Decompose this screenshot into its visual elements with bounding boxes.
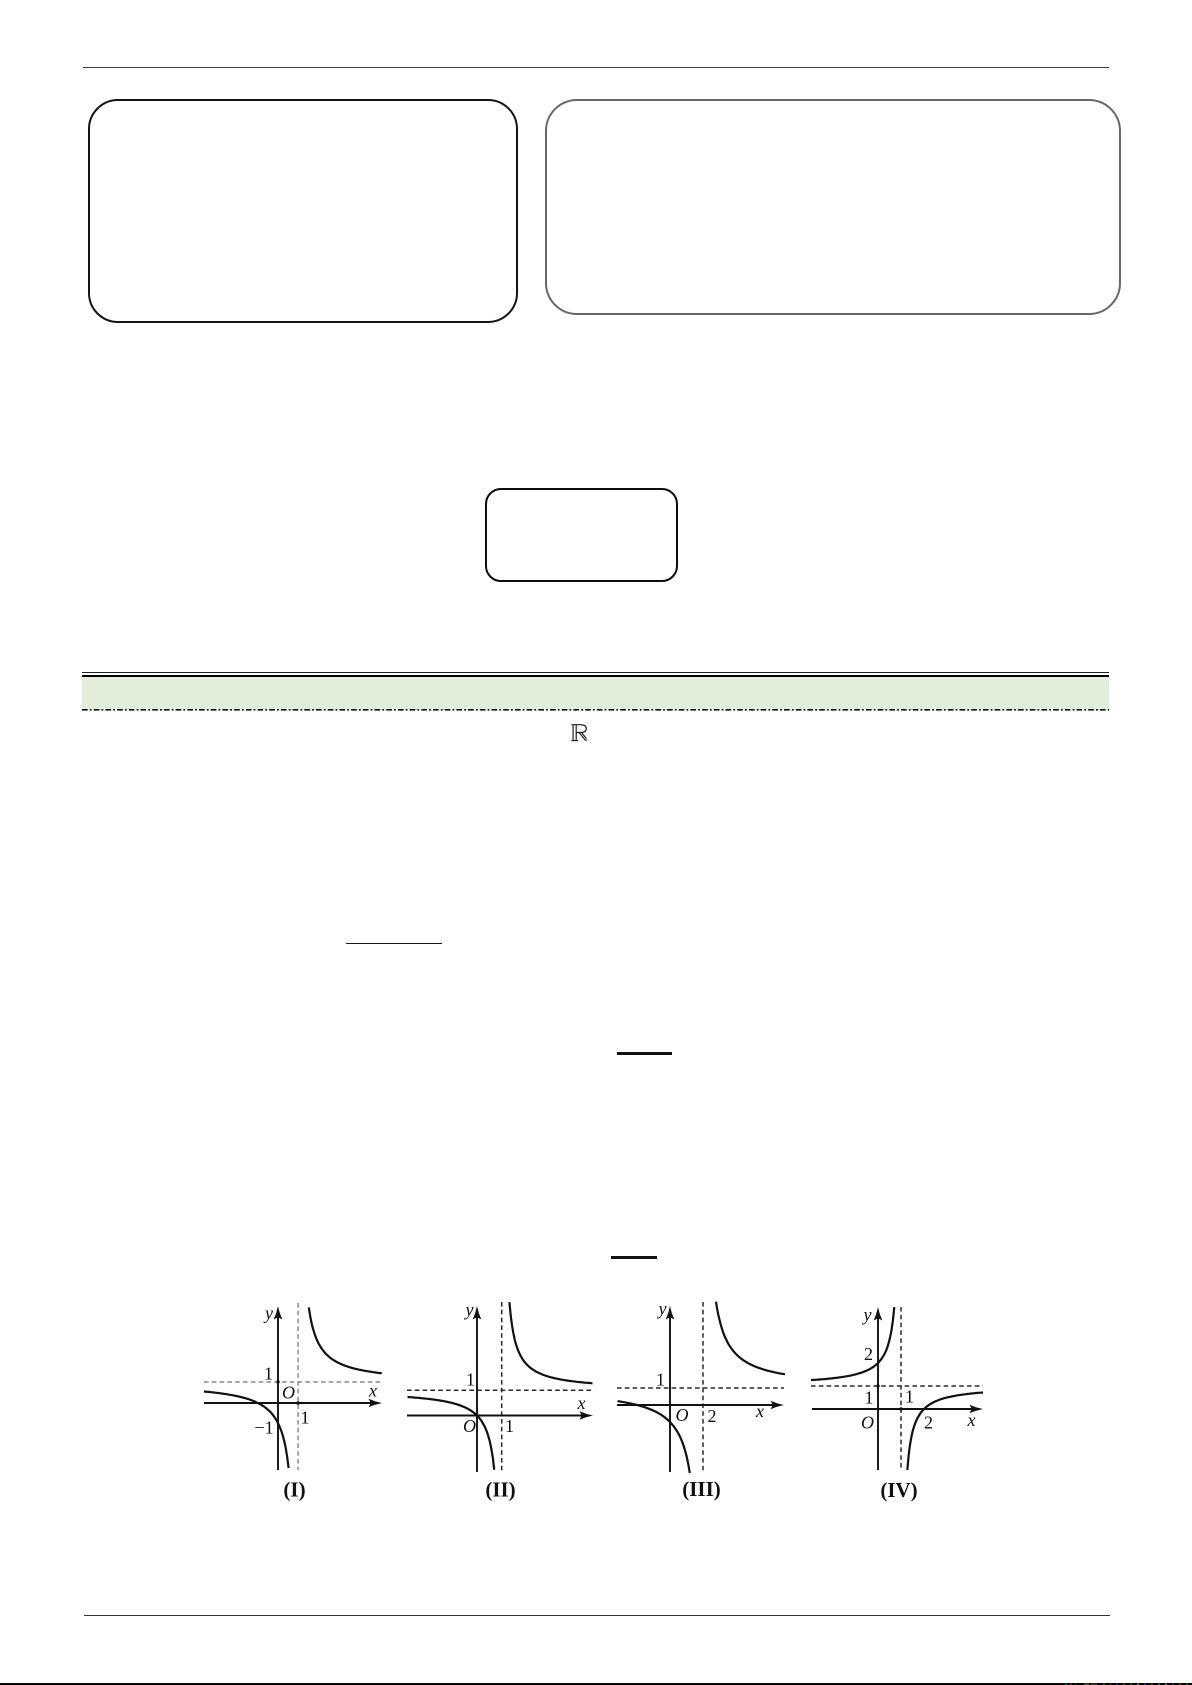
svg-text:(IV): (IV) bbox=[880, 1478, 917, 1502]
svg-text:1: 1 bbox=[301, 1408, 310, 1428]
svg-text:2: 2 bbox=[924, 1413, 933, 1433]
svg-text:x: x bbox=[967, 1410, 976, 1430]
svg-text:x: x bbox=[577, 1393, 586, 1413]
svg-text:1: 1 bbox=[656, 1370, 665, 1390]
svg-text:O: O bbox=[676, 1405, 689, 1425]
svg-text:O: O bbox=[861, 1413, 874, 1433]
svg-text:O: O bbox=[463, 1416, 476, 1436]
svg-text:y: y bbox=[657, 1299, 667, 1319]
svg-text:1: 1 bbox=[505, 1416, 514, 1436]
svg-text:2: 2 bbox=[708, 1406, 717, 1426]
svg-text:(I): (I) bbox=[283, 1478, 305, 1502]
svg-text:x: x bbox=[368, 1381, 377, 1401]
svg-text:2: 2 bbox=[864, 1344, 873, 1364]
svg-text:y: y bbox=[464, 1300, 474, 1320]
svg-text:1: 1 bbox=[865, 1388, 874, 1408]
svg-text:1: 1 bbox=[466, 1370, 475, 1390]
svg-text:1: 1 bbox=[264, 1364, 273, 1384]
svg-text:O: O bbox=[282, 1383, 295, 1403]
svg-text:1: 1 bbox=[905, 1387, 914, 1407]
svg-text:−1: −1 bbox=[254, 1418, 273, 1438]
svg-text:y: y bbox=[862, 1305, 872, 1325]
svg-text:y: y bbox=[263, 1303, 273, 1323]
svg-text:x: x bbox=[755, 1401, 764, 1421]
svg-text:(III): (III) bbox=[682, 1477, 721, 1501]
svg-text:(II): (II) bbox=[485, 1478, 515, 1502]
